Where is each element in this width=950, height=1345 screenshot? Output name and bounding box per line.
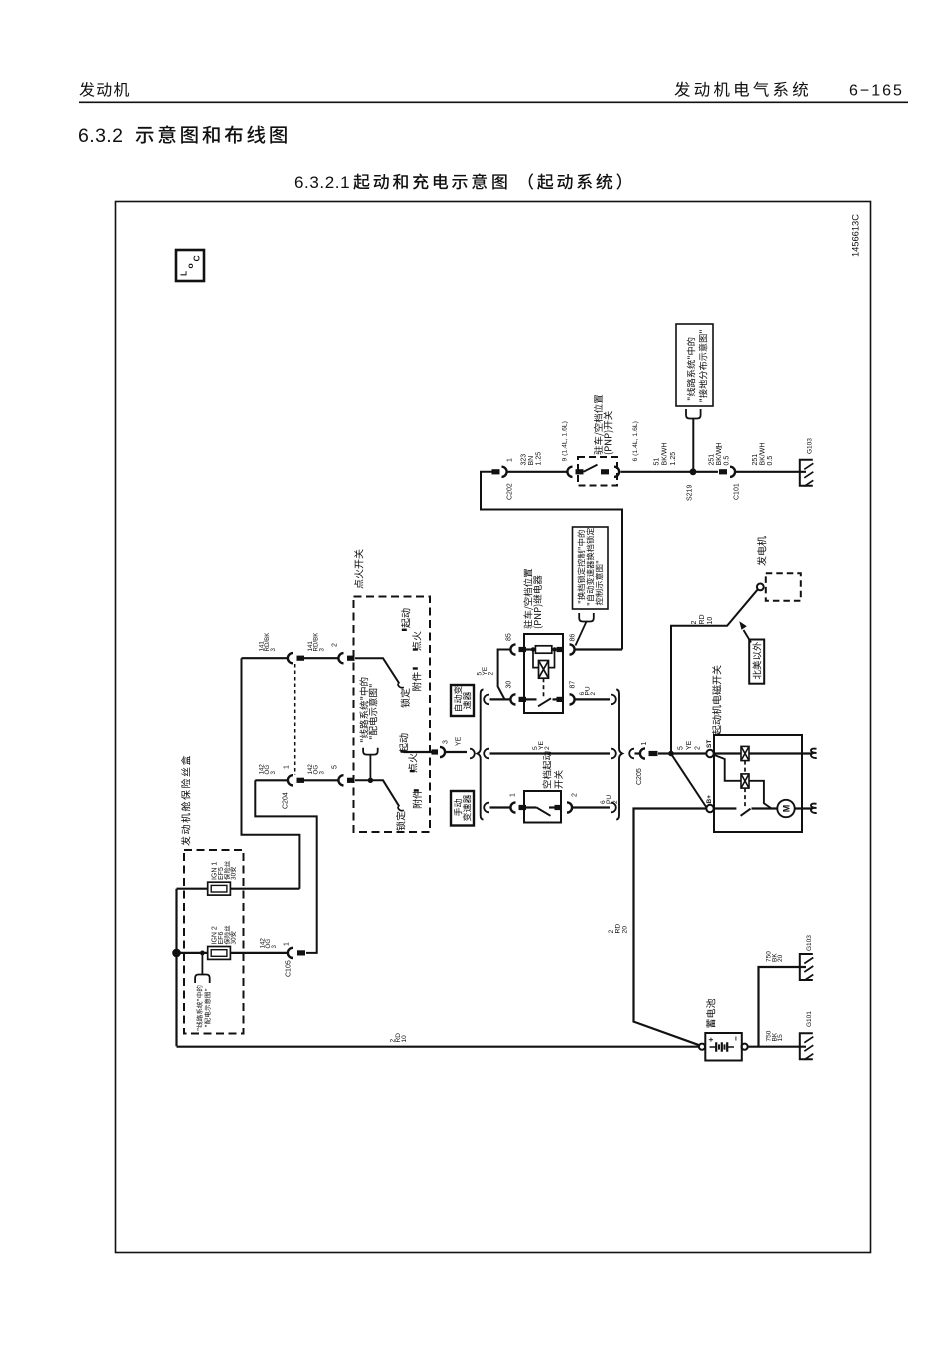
svg-text:6 (1.4L, 1.6L): 6 (1.4L, 1.6L) [632,421,639,461]
svg-text:L: L [179,271,189,276]
svg-text:1: 1 [507,458,514,462]
svg-text:51: 51 [654,458,661,466]
svg-text:20: 20 [777,954,784,962]
svg-text:30: 30 [506,681,513,689]
svg-text:20: 20 [621,926,628,934]
svg-text:2: 2 [487,672,494,676]
svg-text:6−165: 6−165 [849,83,904,100]
svg-text:86: 86 [570,634,577,642]
svg-text:3: 3 [318,771,325,775]
svg-text:G103: G103 [806,935,813,951]
svg-text:−: − [732,1036,741,1041]
svg-text:85: 85 [506,633,513,641]
svg-text:3: 3 [271,945,278,949]
svg-text:2: 2 [332,643,339,647]
svg-text:2: 2 [691,621,698,625]
svg-text:1.25: 1.25 [670,452,677,466]
svg-text:C105: C105 [286,960,293,977]
svg-text:C204: C204 [283,792,290,809]
svg-text:1456613C: 1456613C [851,214,861,257]
svg-text:251: 251 [709,454,716,466]
svg-text:B+: B+ [706,795,713,804]
svg-text:2: 2 [544,746,551,750]
svg-text:1.25: 1.25 [535,452,542,466]
svg-text:5: 5 [332,765,339,769]
svg-text:2: 2 [572,793,579,797]
svg-text:C202: C202 [507,483,514,500]
svg-text:2: 2 [590,692,597,696]
svg-text:0.5: 0.5 [767,456,774,466]
svg-text:10: 10 [401,1035,408,1043]
svg-text:251: 251 [752,454,759,466]
svg-text:o: o [185,263,195,268]
svg-text:G101: G101 [806,1011,813,1027]
svg-text:YE: YE [456,736,463,746]
svg-text:87: 87 [570,681,577,689]
svg-text:+: + [707,1037,716,1042]
svg-text:2: 2 [695,746,702,750]
svg-text:1: 1 [284,942,291,946]
svg-text:6.3.2: 6.3.2 [78,125,123,147]
svg-text:RD: RD [699,614,706,624]
svg-text:9 (1.4L, 1.6L): 9 (1.4L, 1.6L) [562,421,569,461]
svg-text:323: 323 [521,454,528,466]
svg-text:BN: BN [528,456,535,466]
svg-text:C: C [192,255,202,261]
svg-text:0.5: 0.5 [724,456,731,466]
svg-text:BK/WH: BK/WH [662,443,669,466]
svg-text:1: 1 [641,742,648,746]
svg-text:YE: YE [686,740,693,750]
svg-text:EF5: EF5 [218,867,225,880]
svg-text:10: 10 [707,617,714,625]
svg-text:3: 3 [270,648,277,652]
svg-text:M: M [781,805,791,813]
svg-text:S219: S219 [687,485,694,501]
svg-text:1: 1 [510,793,517,797]
svg-text:C205: C205 [636,768,643,785]
svg-text:EF6: EF6 [218,932,225,945]
svg-text:BK/WH: BK/WH [716,443,723,466]
svg-text:3: 3 [318,648,325,652]
svg-text:G103: G103 [807,438,814,454]
svg-text:5: 5 [678,746,685,750]
svg-text:1: 1 [284,765,291,769]
svg-text:BK/WH: BK/WH [759,443,766,466]
svg-text:ST: ST [706,740,713,748]
svg-text:3: 3 [270,771,277,775]
svg-text:3: 3 [443,740,450,744]
svg-text:15: 15 [777,1034,784,1042]
svg-text:2: 2 [612,800,619,804]
svg-text:C101: C101 [734,483,741,500]
svg-text:6.3.2.1: 6.3.2.1 [294,173,350,192]
